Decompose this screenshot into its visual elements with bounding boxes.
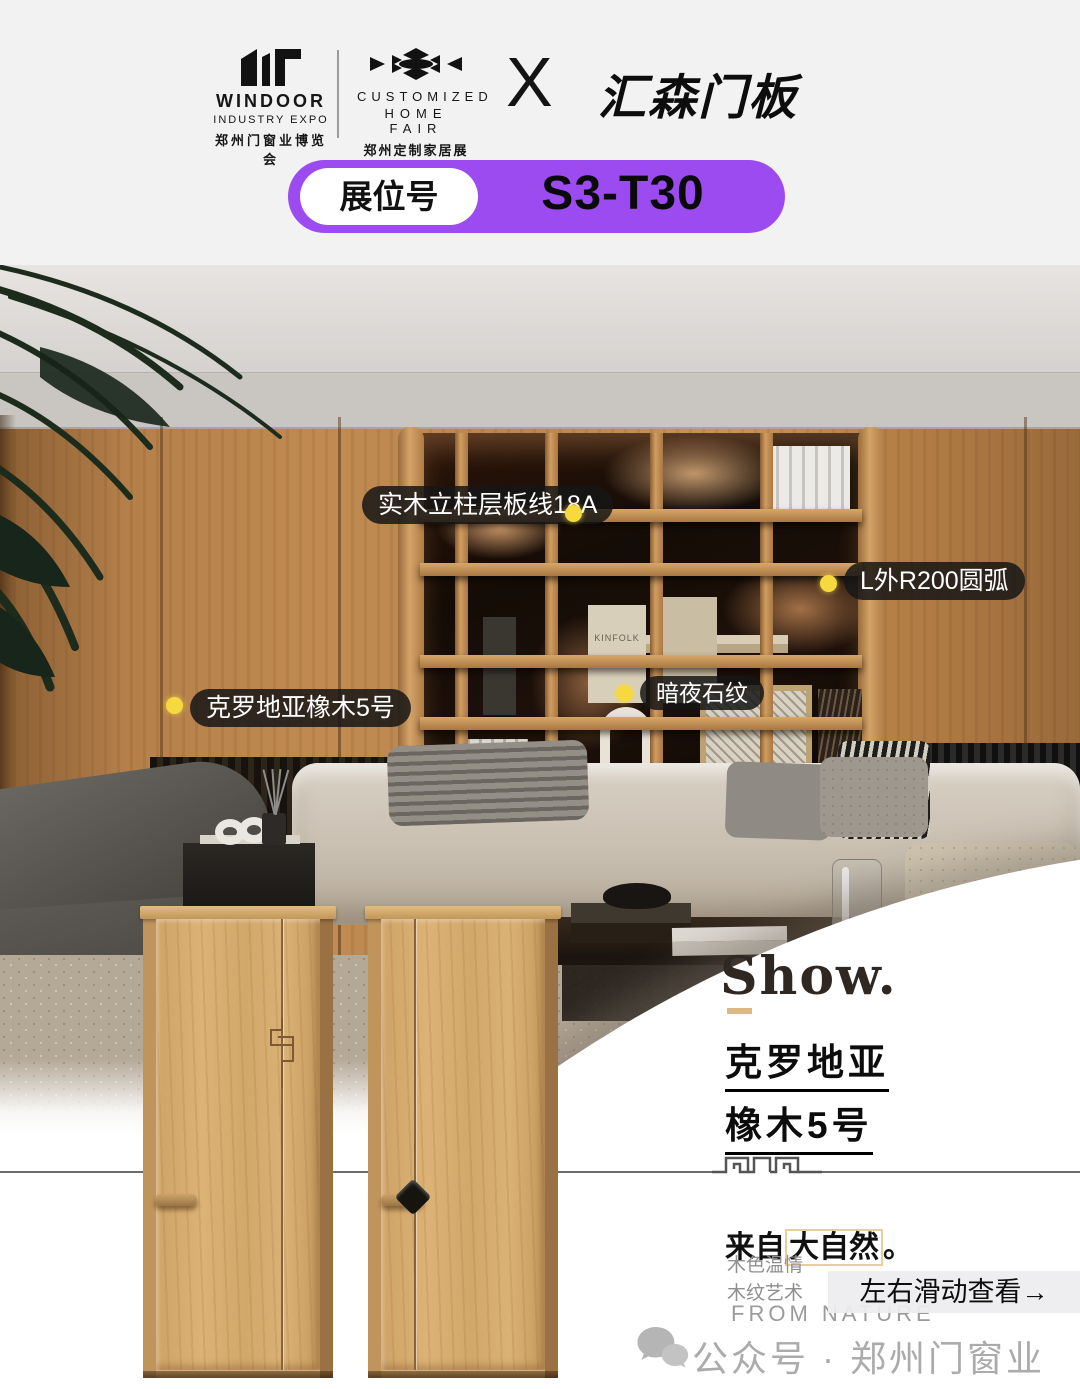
- callout-dot: [820, 575, 837, 592]
- callout-arc: L外R200圆弧: [844, 562, 1025, 600]
- door-right: [368, 906, 558, 1378]
- shelf-board: [420, 563, 862, 576]
- door-meander-motif: [262, 1018, 302, 1088]
- windoor-building-icon: [239, 46, 303, 86]
- windoor-subtitle: INDUSTRY EXPO: [212, 114, 330, 126]
- booth-number: S3-T30: [488, 166, 758, 221]
- windoor-expo-logo: WINDOOR INDUSTRY EXPO 郑州门窗业博览会: [212, 46, 330, 168]
- white-book-stack: [672, 926, 787, 942]
- wechat-icon: [635, 1324, 689, 1374]
- door-handle: [155, 1194, 197, 1206]
- windoor-title: WINDOOR: [212, 91, 330, 112]
- brand-name: 汇森门板: [598, 58, 798, 128]
- fair-line1: CUSTOMIZED: [357, 89, 475, 104]
- door-lintel: [140, 906, 336, 919]
- official-account-text: 公众号 · 郑州门窗业博览会: [692, 1330, 1080, 1389]
- product-line1: 克罗地亚: [725, 1032, 889, 1092]
- fair-line2: HOME FAIR: [357, 106, 475, 136]
- booth-badge: 展位号 S3-T30: [288, 160, 785, 233]
- tan-dash: [727, 1008, 752, 1014]
- promo-poster: WINDOOR INDUSTRY EXPO 郑州门窗业博览会 CUSTOMIZE…: [0, 0, 1080, 1389]
- door-bottom-edge: [368, 1371, 558, 1378]
- callout-stone: 暗夜石纹: [640, 676, 764, 710]
- reed-diffuser: [262, 813, 286, 845]
- black-bowl: [603, 883, 671, 909]
- callout-dot: [565, 505, 582, 522]
- plant-leaves: [0, 265, 410, 697]
- slogan-suffix: 。: [883, 1231, 913, 1264]
- booth-label: 展位号: [300, 168, 478, 225]
- product-line2: 橡木5号: [725, 1095, 873, 1155]
- callout-dot: [616, 685, 633, 702]
- tagline-2: 木纹艺术: [727, 1280, 803, 1308]
- product-name: 克罗地亚 橡木5号: [725, 1032, 889, 1158]
- tagline-1: 木色温情: [727, 1252, 803, 1280]
- white-books: [766, 446, 850, 509]
- door-groove: [414, 919, 416, 1370]
- callout-oak: 克罗地亚橡木5号: [190, 689, 411, 727]
- home-fair-logo: CUSTOMIZED HOME FAIR 郑州定制家居展: [357, 46, 475, 159]
- shelf-board: [420, 717, 862, 730]
- door-slab: [381, 919, 545, 1370]
- taglines: 木色温情 木纹艺术: [727, 1252, 803, 1307]
- header: WINDOOR INDUSTRY EXPO 郑州门窗业博览会 CUSTOMIZE…: [0, 0, 1080, 265]
- door-bottom-edge: [143, 1371, 333, 1378]
- collab-x-mark: X: [506, 42, 553, 122]
- knit-pillow: [820, 757, 928, 837]
- door-lintel: [365, 906, 561, 919]
- door-groove: [281, 919, 283, 1370]
- swipe-hint[interactable]: 左右滑动查看→: [828, 1271, 1080, 1313]
- show-word: Show.: [720, 946, 898, 1007]
- shelf-board: [420, 655, 862, 668]
- home-fair-diamond-icon: [362, 46, 470, 82]
- fair-cn: 郑州定制家居展: [357, 140, 475, 159]
- logo-divider: [337, 50, 339, 138]
- gray-pillow: [725, 761, 834, 841]
- door-left: [143, 906, 333, 1378]
- striped-lumbar-pillow: [387, 740, 590, 827]
- door-slab: [156, 919, 320, 1370]
- callout-dot: [166, 697, 183, 714]
